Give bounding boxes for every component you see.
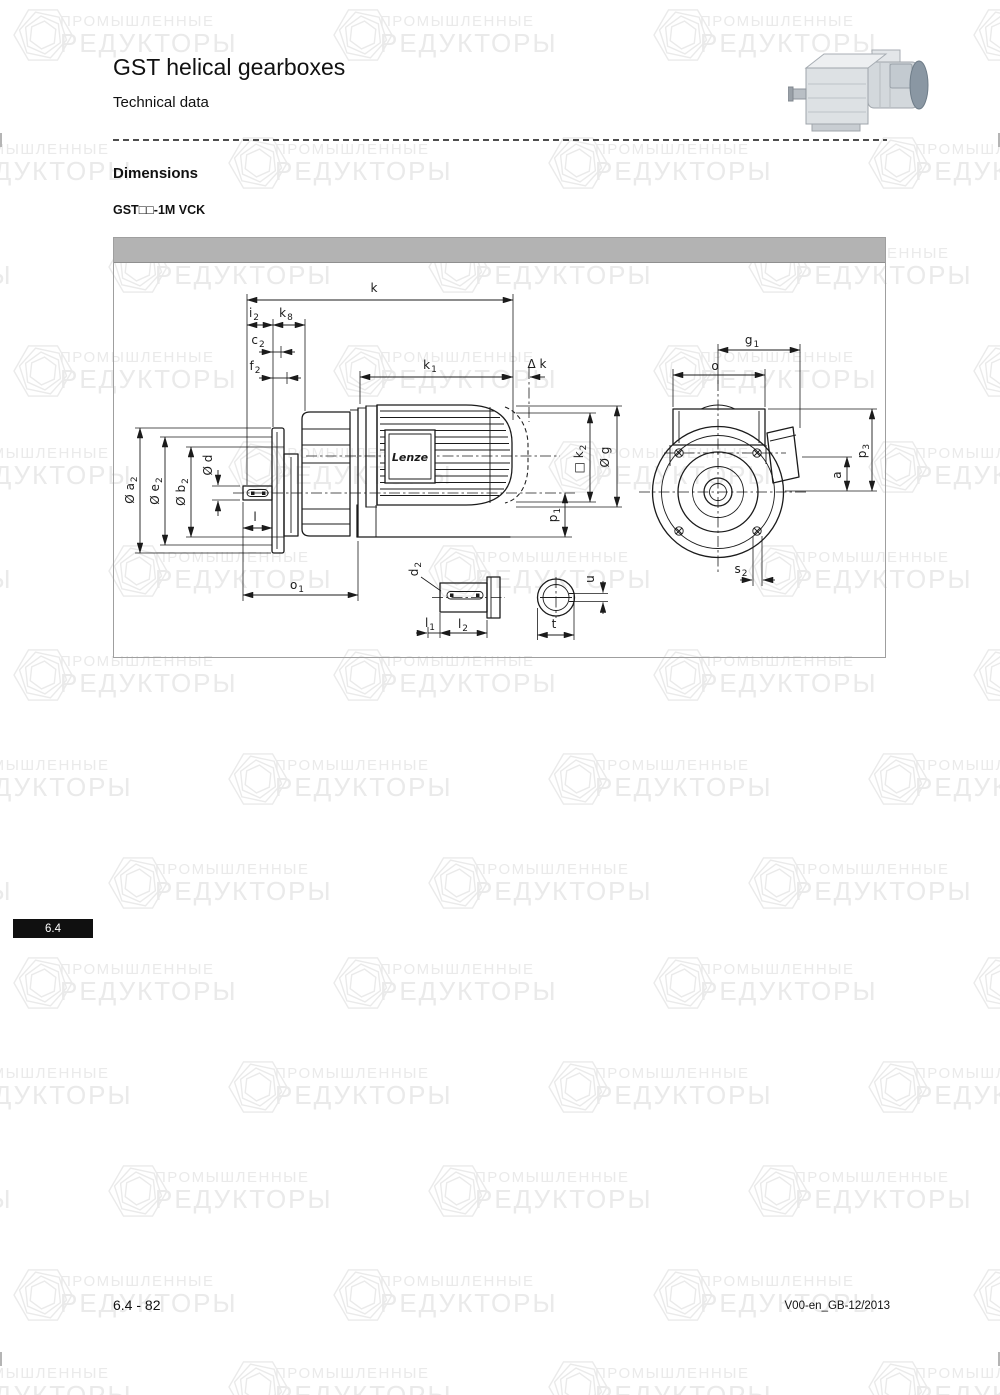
shaft-detail-section: [538, 577, 609, 640]
dim-label-g: Ø g: [598, 447, 612, 468]
catalog-page: ПРОМЫШЛЕННЫЕРЕДУКТОРЫПРОМЫШЛЕННЫЕРЕДУКТО…: [0, 0, 1000, 1395]
dim-label-k8: k8: [279, 306, 293, 323]
variant-label: GST□□-1M VCK: [113, 203, 205, 217]
page-subtitle: Technical data: [113, 94, 209, 111]
dim-label-f2: f2: [250, 359, 261, 376]
crop-mark: [0, 133, 2, 147]
front-view-dimensions: [673, 344, 877, 586]
side-view: Lenze: [233, 405, 575, 553]
dim-label-a: a: [830, 471, 844, 478]
footer-version: V00-en_GB-12/2013: [785, 1300, 891, 1312]
crop-mark: [0, 1352, 2, 1366]
section-heading: Dimensions: [113, 165, 198, 182]
dim-label-o1: o1: [290, 578, 304, 595]
dim-label-k: Δ k: [528, 357, 547, 371]
section-tab-label: 6.4: [45, 923, 61, 935]
dim-label-p1: p1: [546, 508, 563, 522]
side-view-dimensions: [135, 294, 622, 601]
dim-label-c2: c2: [251, 333, 264, 350]
technical-drawing-svg: Lenze: [114, 238, 885, 657]
page-title: GST helical gearboxes: [113, 54, 345, 81]
dim-label-t: t: [552, 617, 557, 631]
dim-label-k: k: [371, 281, 378, 295]
dimension-drawing: Lenze: [113, 237, 886, 658]
dim-label-b2: Ø b2: [174, 478, 191, 506]
dim-label-k1: k1: [423, 358, 437, 375]
section-tab: 6.4: [13, 919, 93, 938]
dim-label-l2: l2: [458, 617, 468, 634]
gearmotor-illustration: [788, 50, 928, 131]
dim-label-e2: Ø e2: [148, 477, 165, 504]
dim-label-s2: s2: [735, 562, 748, 579]
dim-label-l: l: [253, 510, 256, 524]
dimension-labels: ki2k8c2f2k1Δ kg1oØ a2Ø e2Ø b2Ø dlo1p1□ k…: [123, 281, 872, 634]
dim-label-i2: i2: [249, 306, 259, 323]
dim-label-k2: □ k2: [572, 445, 589, 474]
product-photo: [788, 40, 944, 136]
footer-page-number: 6.4 - 82: [113, 1297, 160, 1313]
brand-logo-text: Lenze: [392, 451, 429, 464]
dim-label-o: o: [711, 359, 718, 373]
dashed-separator: [113, 139, 887, 141]
dim-label-u: u: [583, 575, 597, 583]
dim-label-a2: Ø a2: [123, 476, 140, 503]
dim-label-g1: g1: [745, 333, 759, 350]
dim-label-l1: l1: [425, 616, 435, 633]
dim-label-p3: p3: [855, 444, 872, 458]
dim-label-d2: d2: [407, 562, 424, 576]
dim-label-d: Ø d: [201, 455, 215, 476]
